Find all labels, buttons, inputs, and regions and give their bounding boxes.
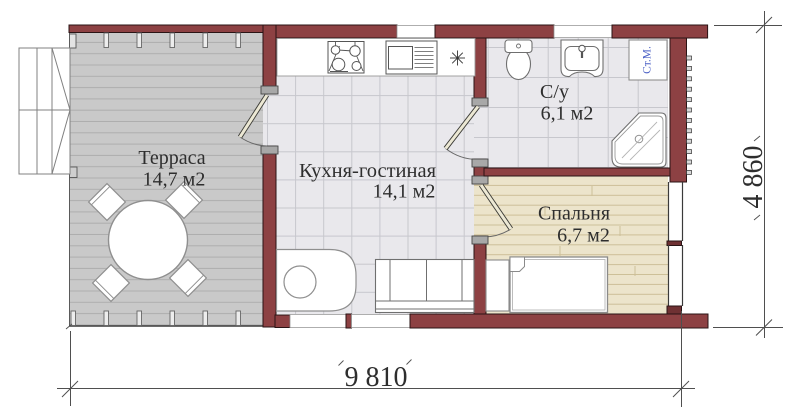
svg-text:4 860: 4 860 [738, 146, 769, 209]
svg-text:6,7 м2: 6,7 м2 [557, 225, 610, 247]
svg-text:9 810: 9 810 [345, 362, 408, 393]
svg-text:14,7 м2: 14,7 м2 [143, 169, 206, 191]
svg-text:Кухня-гостиная: Кухня-гостиная [299, 160, 437, 182]
svg-text:6,1 м2: 6,1 м2 [541, 103, 594, 125]
svg-text:Спальня: Спальня [538, 203, 610, 225]
svg-text:Ст.М.: Ст.М. [642, 46, 654, 74]
svg-text:Терраса: Терраса [138, 147, 205, 169]
svg-text:С/у: С/у [540, 81, 569, 103]
svg-text:14,1 м2: 14,1 м2 [373, 181, 436, 203]
